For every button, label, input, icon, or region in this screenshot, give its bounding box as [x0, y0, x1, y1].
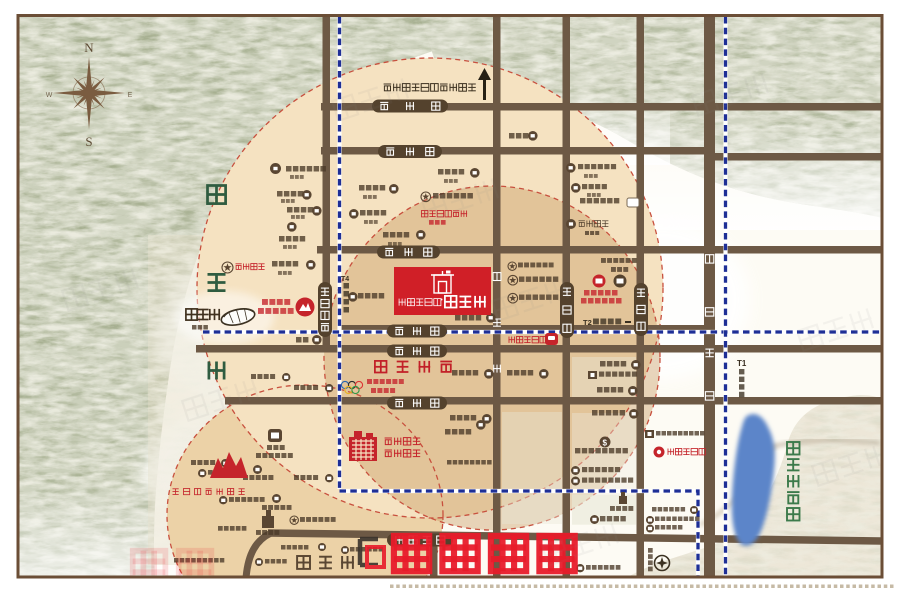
- svg-text:N: N: [84, 40, 94, 55]
- svg-text:S: S: [85, 134, 92, 149]
- svg-text:T2: T2: [583, 318, 592, 327]
- svg-text:$: $: [603, 439, 608, 448]
- svg-text:T1: T1: [737, 359, 747, 368]
- svg-text:W: W: [46, 92, 53, 99]
- svg-text:E: E: [128, 92, 133, 99]
- svg-text:T4: T4: [341, 276, 349, 283]
